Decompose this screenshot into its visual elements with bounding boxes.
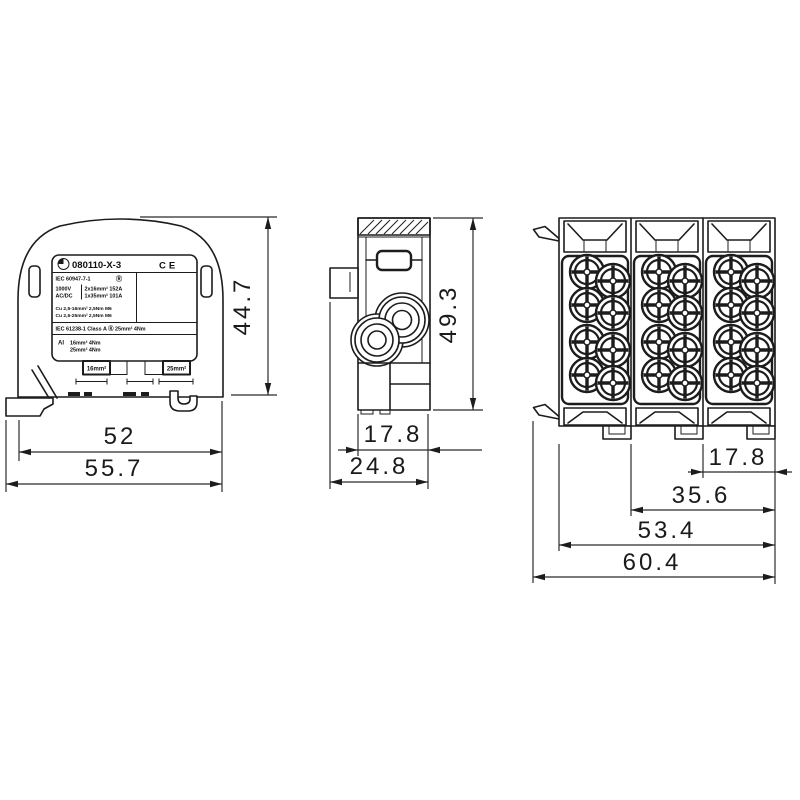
dim-text-52: 52 — [104, 423, 137, 450]
tag-25mm: 25mm² — [167, 366, 186, 373]
dim-text-53-4: 53.4 — [638, 517, 697, 544]
tag-16mm: 16mm² — [87, 366, 106, 373]
label-rating-2: 1x35mm² 101A — [85, 294, 123, 300]
label-class-line: IEC 61238-1 Class A Ⓡ 25mm² 4Nm — [56, 325, 146, 333]
label-reg-mark: Ⓡ — [116, 275, 122, 283]
label-part-number: 080110-X-3 — [72, 260, 121, 271]
dim-text-17-8-top: 17.8 — [709, 444, 768, 471]
label-al-2: 25mm² 4Nm — [70, 348, 101, 354]
label-voltage: 1000V — [56, 287, 72, 293]
drawing-page: 080110-X-3 CE IEC 60947-7-1 Ⓡ 1000V AC/D… — [0, 0, 800, 800]
dim-text-55-7: 55.7 — [85, 455, 144, 482]
technical-drawing: 080110-X-3 CE IEC 60947-7-1 Ⓡ 1000V AC/D… — [0, 0, 800, 800]
dim-text-49-3: 49.3 — [435, 285, 462, 344]
label-acdc: AC/DC — [56, 294, 73, 300]
label-al-1: 16mm² 4Nm — [70, 341, 101, 347]
dim-text-17-8-side: 17.8 — [364, 421, 423, 448]
label-rating-1: 2x16mm² 152A — [85, 287, 123, 293]
dim-text-35-6: 35.6 — [672, 482, 731, 509]
label-standard: IEC 60947-7-1 — [56, 277, 91, 283]
ce-mark: CE — [159, 261, 178, 272]
label-cu-2: Cu 2,5-25mm² 2,5Nm M6 — [56, 313, 113, 319]
dim-text-44-7: 44.7 — [229, 277, 256, 336]
dim-text-60-4: 60.4 — [623, 549, 682, 576]
label-al: Al — [58, 341, 64, 347]
rating-label: 080110-X-3 CE IEC 60947-7-1 Ⓡ 1000V AC/D… — [52, 255, 197, 361]
label-cu-1: Cu 2,5-16mm² 2,5Nm M6 — [56, 306, 113, 312]
side-left-tab — [330, 268, 358, 298]
dim-text-24-8: 24.8 — [350, 453, 409, 480]
